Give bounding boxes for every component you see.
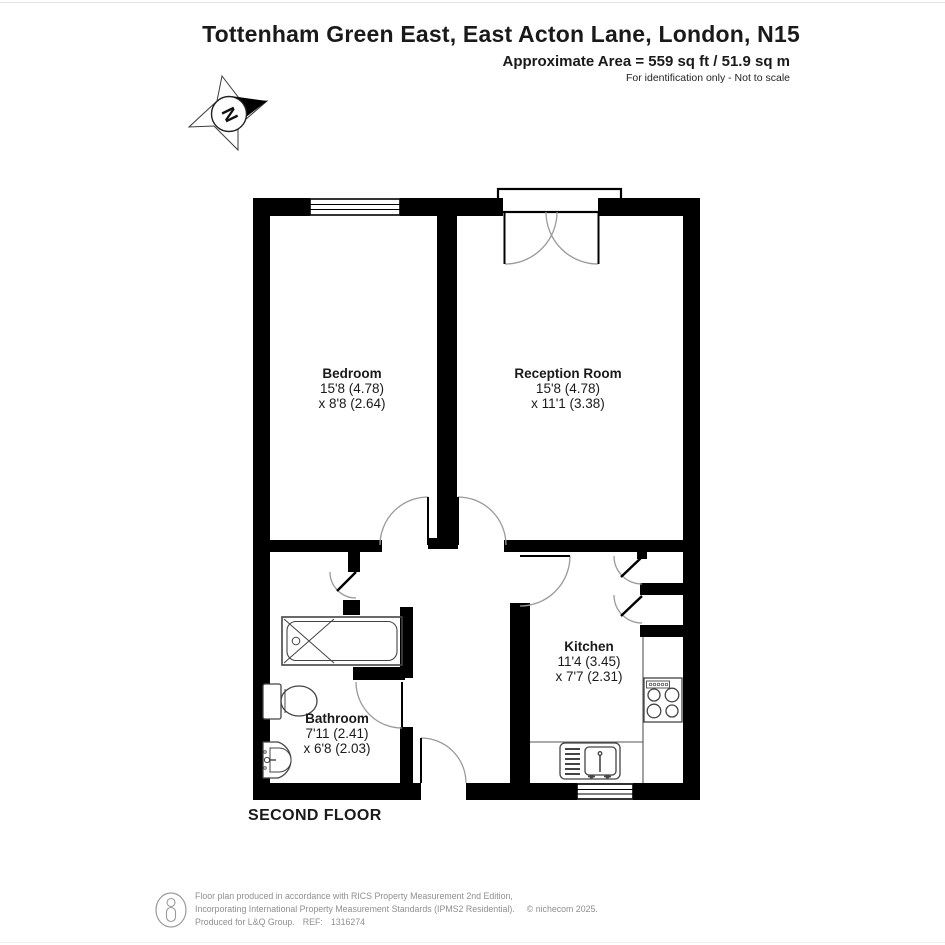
room-dim1: 15'8 (4.78) (514, 381, 621, 396)
footer-ref-value: 1316274 (331, 917, 365, 927)
hob-icon (644, 678, 682, 722)
basin-icon (263, 742, 291, 778)
walls (253, 198, 700, 800)
room-dim2: x 8'8 (2.64) (318, 396, 385, 411)
french-door-right-arc (546, 212, 598, 264)
room-label-reception: Reception Room 15'8 (4.78) x 11'1 (3.38) (514, 366, 621, 411)
footer-line3: Produced for L&Q Group.REF:1316274 (195, 916, 598, 929)
footer-copyright: © nichecom 2025. (527, 904, 598, 914)
footer-line1: Floor plan produced in accordance with R… (195, 890, 598, 903)
nichecom-logo-icon (153, 890, 189, 930)
entrance-door-arc (421, 738, 466, 783)
footer-line2: Incorporating International Property Mea… (195, 903, 598, 916)
footer: Floor plan produced in accordance with R… (153, 890, 598, 930)
room-dim1: 15'8 (4.78) (318, 381, 385, 396)
kitchen-door-arc (520, 556, 570, 606)
room-label-bedroom: Bedroom 15'8 (4.78) x 8'8 (2.64) (318, 366, 385, 411)
room-dim2: x 11'1 (3.38) (514, 396, 621, 411)
door-leaves (337, 212, 642, 783)
room-name: Kitchen (555, 639, 622, 654)
room-label-bathroom: Bathroom 7'11 (2.41) x 6'8 (2.03) (303, 711, 370, 756)
room-dim2: x 6'8 (2.03) (303, 741, 370, 756)
compass-rose-icon: N (189, 76, 267, 150)
floorplan-page: Tottenham Green East, East Acton Lane, L… (0, 0, 945, 945)
cupboard-door-leaf (337, 572, 356, 591)
footer-text: Floor plan produced in accordance with R… (195, 890, 598, 929)
room-name: Reception Room (514, 366, 621, 381)
footer-standards: Incorporating International Property Mea… (195, 904, 515, 914)
closet2-door-leaf (621, 596, 642, 616)
door-arcs (330, 212, 642, 783)
bedroom-window (310, 199, 400, 215)
bathtub-icon (282, 617, 402, 665)
footer-ref-label: REF: (303, 917, 323, 927)
room-dim2: x 7'7 (2.31) (555, 669, 622, 684)
room-dim1: 11'4 (3.45) (555, 654, 622, 669)
floor-plan-svg: N (0, 0, 945, 945)
room-name: Bathroom (303, 711, 370, 726)
floor-name-label: SECOND FLOOR (248, 807, 382, 825)
room-name: Bedroom (318, 366, 385, 381)
closet1-door-leaf (621, 557, 642, 577)
french-door-left-arc (505, 212, 557, 264)
footer-produced-for: Produced for L&Q Group. (195, 917, 295, 927)
room-label-kitchen: Kitchen 11'4 (3.45) x 7'7 (2.31) (555, 639, 622, 684)
kitchen-window (577, 784, 633, 799)
reception-door-arc (458, 497, 506, 545)
bedroom-door-arc (380, 497, 428, 545)
kitchen-sink-icon (560, 743, 620, 779)
room-dim1: 7'11 (2.41) (303, 726, 370, 741)
